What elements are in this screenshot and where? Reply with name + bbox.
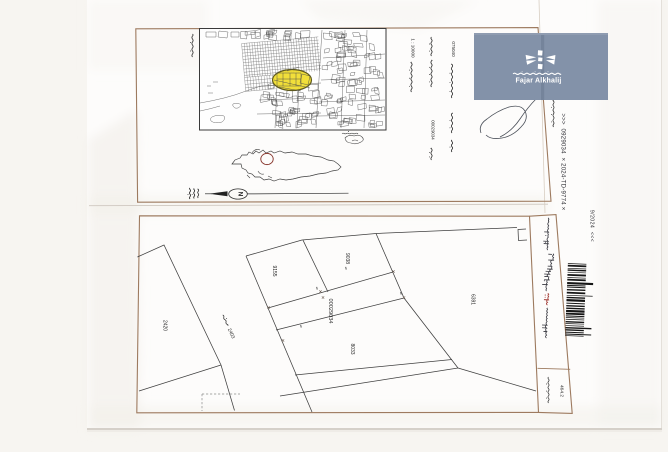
svg-text:N: N bbox=[236, 192, 243, 197]
svg-text:9/2024 <<<: 9/2024 <<< bbox=[589, 210, 595, 242]
svg-text:Fajar Alkhalij: Fajar Alkhalij bbox=[515, 77, 561, 84]
svg-text:464.2: 464.2 bbox=[559, 385, 565, 397]
svg-text:075040: 075040 bbox=[451, 41, 456, 57]
svg-text:9155: 9155 bbox=[271, 265, 277, 276]
svg-text:2420: 2420 bbox=[162, 320, 168, 331]
svg-text:>>> 0929034 × 2024-TD-9774 ×: >>> 0929034 × 2024-TD-9774 × bbox=[560, 114, 567, 211]
svg-text:8033: 8033 bbox=[349, 343, 355, 354]
svg-text:9038: 9038 bbox=[344, 253, 350, 264]
svg-text:6391: 6391 bbox=[470, 294, 476, 305]
svg-text:00029034: 00029034 bbox=[327, 299, 333, 324]
svg-text:1 : 10000: 1 : 10000 bbox=[411, 38, 416, 58]
svg-text:00029034: 00029034 bbox=[431, 120, 436, 140]
